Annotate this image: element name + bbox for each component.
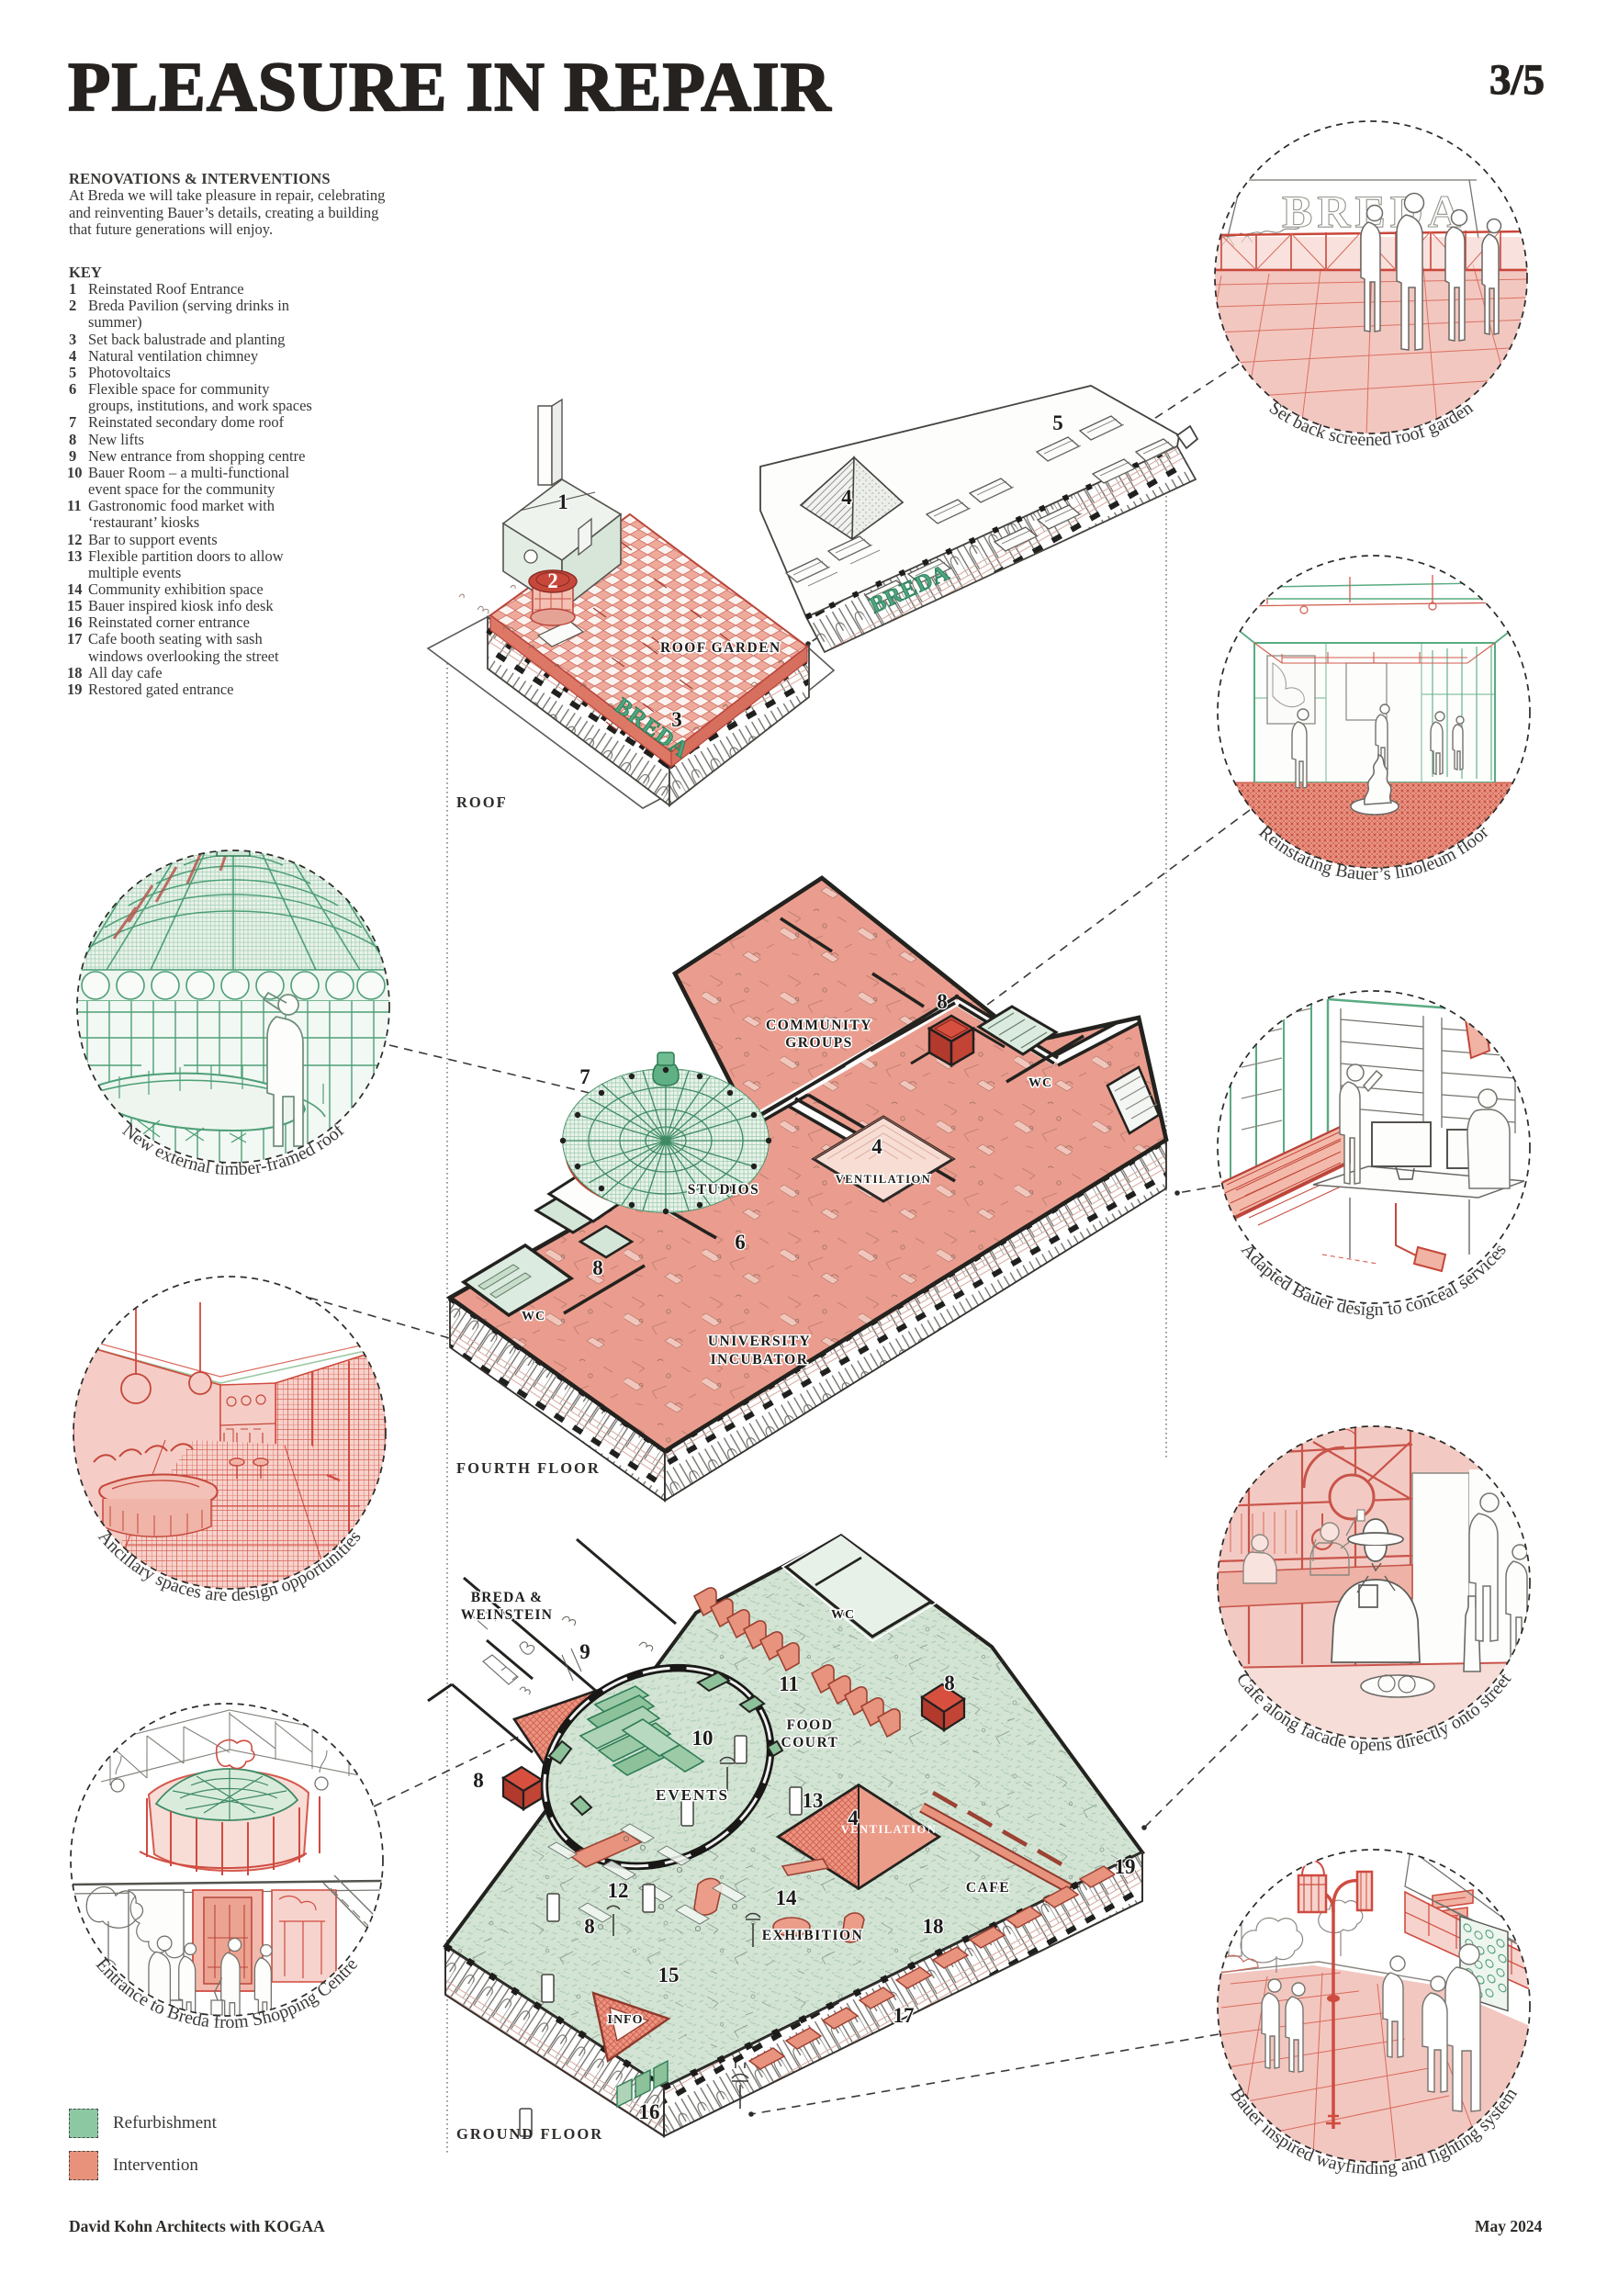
svg-text:ROOF GARDEN: ROOF GARDEN [660, 640, 781, 656]
svg-text:COURT: COURT [781, 1735, 839, 1750]
svg-text:8: 8 [584, 1915, 595, 1938]
svg-text:FOOD: FOOD [787, 1717, 834, 1733]
svg-text:BREDA &: BREDA & [471, 1590, 544, 1605]
svg-text:2: 2 [547, 569, 558, 592]
svg-text:WEINSTEIN: WEINSTEIN [461, 1607, 553, 1623]
svg-text:8: 8 [937, 990, 948, 1013]
svg-text:7: 7 [579, 1065, 590, 1088]
svg-text:WC: WC [831, 1608, 855, 1622]
svg-text:15: 15 [658, 1964, 680, 1986]
svg-text:UNIVERSITY: UNIVERSITY [708, 1334, 811, 1349]
svg-text:GROUND FLOOR: GROUND FLOOR [456, 2125, 603, 2143]
svg-text:12: 12 [608, 1879, 629, 1902]
svg-text:4: 4 [871, 1135, 882, 1158]
svg-text:6: 6 [735, 1231, 746, 1254]
svg-text:VENTILATION: VENTILATION [836, 1173, 931, 1186]
svg-text:COMMUNITY: COMMUNITY [766, 1018, 872, 1033]
svg-text:5: 5 [1052, 411, 1063, 434]
svg-text:GROUPS: GROUPS [785, 1035, 853, 1051]
svg-text:1: 1 [557, 490, 568, 513]
svg-text:8: 8 [592, 1256, 603, 1279]
svg-text:CAFE: CAFE [966, 1880, 1010, 1896]
svg-text:8: 8 [944, 1671, 955, 1694]
svg-text:11: 11 [779, 1672, 799, 1695]
svg-text:10: 10 [692, 1727, 714, 1750]
svg-text:18: 18 [923, 1915, 944, 1938]
svg-text:4: 4 [841, 486, 852, 509]
svg-text:14: 14 [776, 1886, 798, 1909]
svg-text:VENTILATION: VENTILATION [841, 1823, 937, 1836]
svg-text:3: 3 [671, 708, 682, 731]
svg-text:EVENTS: EVENTS [656, 1786, 729, 1804]
svg-text:WC: WC [1028, 1076, 1052, 1090]
svg-text:INCUBATOR: INCUBATOR [711, 1352, 809, 1367]
svg-text:16: 16 [639, 2100, 660, 2123]
svg-text:STUDIOS: STUDIOS [688, 1182, 760, 1198]
svg-text:19: 19 [1115, 1855, 1136, 1878]
svg-text:17: 17 [893, 2004, 915, 2027]
svg-text:WC: WC [522, 1310, 545, 1323]
svg-text:EXHIBITION: EXHIBITION [762, 1928, 864, 1943]
svg-text:13: 13 [803, 1789, 824, 1812]
svg-text:ROOF: ROOF [456, 793, 508, 811]
svg-text:9: 9 [579, 1640, 590, 1663]
svg-text:8: 8 [473, 1769, 484, 1792]
svg-text:INFO: INFO [608, 2013, 644, 2027]
svg-text:FOURTH FLOOR: FOURTH FLOOR [456, 1459, 601, 1477]
